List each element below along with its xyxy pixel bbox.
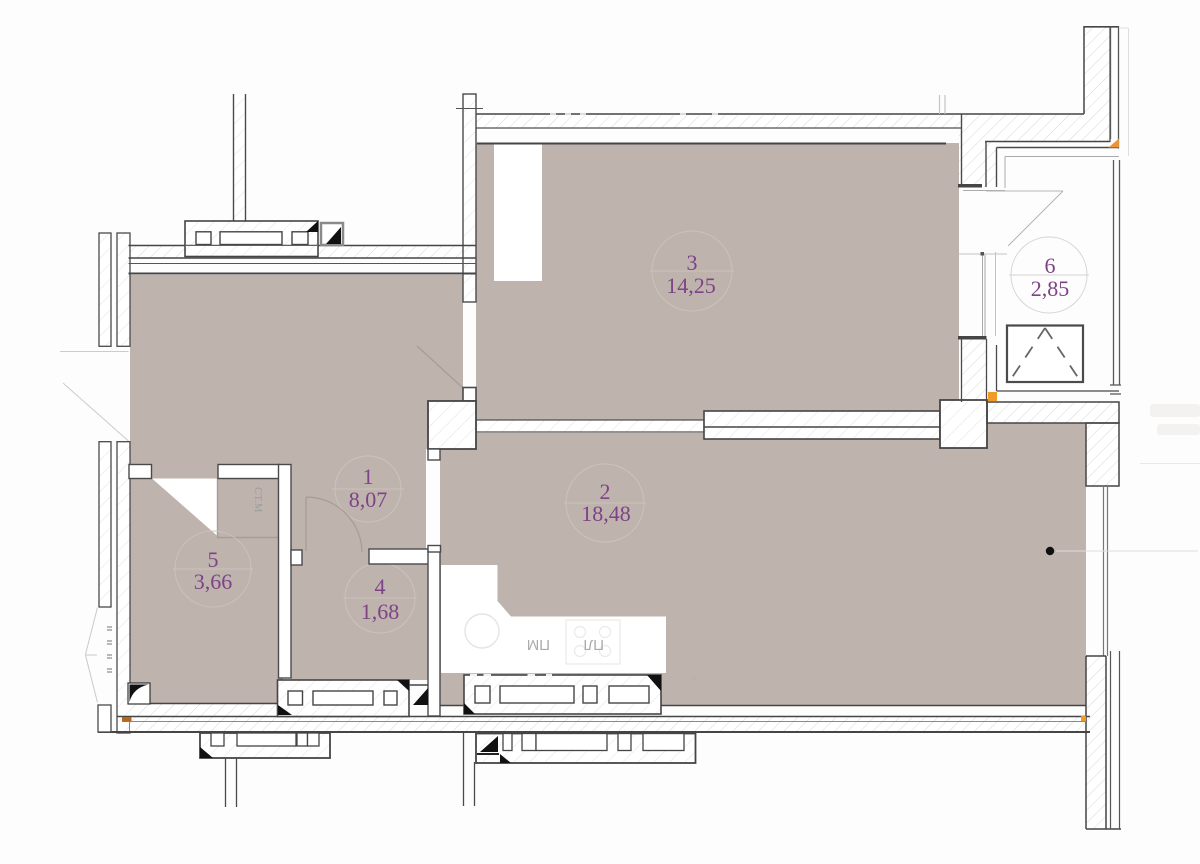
svg-text:4: 4	[375, 574, 386, 599]
svg-text:ПЛ: ПЛ	[583, 636, 604, 653]
svg-text:2,85: 2,85	[1031, 276, 1070, 301]
svg-text:ПМ: ПМ	[527, 636, 550, 653]
svg-text:3: 3	[687, 250, 698, 275]
svg-text:14,25: 14,25	[666, 273, 716, 298]
svg-text:6: 6	[1045, 253, 1056, 278]
svg-text:8,07: 8,07	[349, 487, 388, 512]
svg-text:18,48: 18,48	[581, 501, 631, 526]
svg-text:СТ.М: СТ.М	[252, 487, 264, 513]
svg-text:1,68: 1,68	[361, 599, 400, 624]
svg-text:x: x	[691, 669, 698, 684]
svg-text:1: 1	[363, 464, 374, 489]
svg-text:3,66: 3,66	[194, 569, 233, 594]
